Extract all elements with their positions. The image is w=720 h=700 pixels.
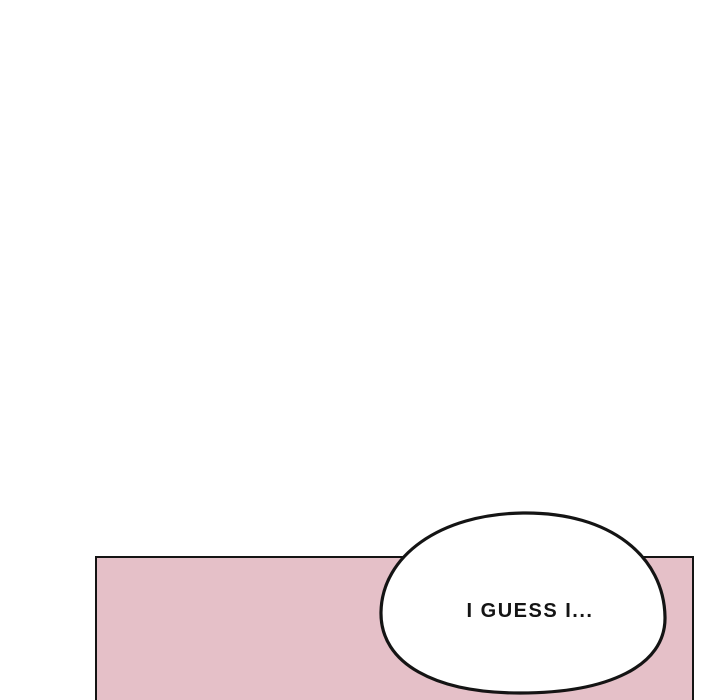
speech-bubble (0, 0, 720, 700)
speech-text: I GUESS I... (410, 600, 650, 623)
comic-page: I GUESS I... (0, 0, 720, 700)
